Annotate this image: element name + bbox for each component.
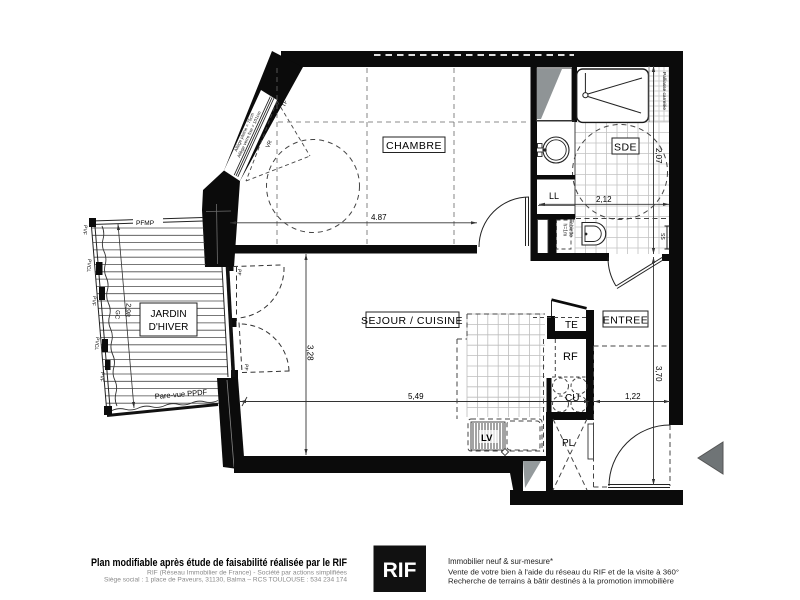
- svg-text:PF: PF: [242, 364, 249, 371]
- svg-text:PVF: PVF: [81, 225, 88, 235]
- svg-text:2,07: 2,07: [654, 148, 663, 164]
- svg-text:PVF: PVF: [98, 372, 105, 382]
- svg-text:2,12: 2,12: [596, 195, 612, 204]
- svg-text:GC: GC: [113, 310, 120, 320]
- svg-text:1,22: 1,22: [625, 392, 641, 401]
- svg-text:PVCL: PVCL: [85, 259, 92, 273]
- svg-text:PL: PL: [562, 438, 575, 449]
- svg-text:PF: PF: [235, 269, 242, 276]
- svg-text:ENTREE: ENTREE: [603, 315, 649, 327]
- svg-text:Immobilier neuf & sur-mesure*: Immobilier neuf & sur-mesure*: [448, 557, 553, 566]
- svg-text:PVF: PVF: [90, 296, 97, 306]
- svg-text:CHAMBRE: CHAMBRE: [386, 140, 442, 152]
- svg-text:2,98: 2,98: [123, 303, 131, 317]
- svg-text:D'HIVER: D'HIVER: [149, 322, 189, 333]
- svg-text:SS: SS: [659, 233, 665, 240]
- svg-text:LL: LL: [549, 191, 559, 201]
- svg-text:h=1m: h=1m: [562, 224, 568, 237]
- svg-text:5,49: 5,49: [408, 392, 424, 401]
- svg-text:RF: RF: [563, 351, 578, 363]
- svg-text:CU: CU: [565, 393, 579, 404]
- svg-text:RIF: RIF: [383, 559, 417, 582]
- svg-text:Plan modifiable après étude de: Plan modifiable après étude de faisabili…: [91, 557, 347, 569]
- svg-text:3,70: 3,70: [654, 366, 663, 382]
- svg-text:TE: TE: [565, 320, 578, 331]
- svg-text:Palliasse carrelée: Palliasse carrelée: [661, 72, 667, 110]
- svg-text:4.87: 4.87: [371, 213, 387, 222]
- svg-text:RIF (Réseau Immobilier de Fran: RIF (Réseau Immobilier de France) - Soci…: [147, 570, 348, 577]
- svg-text:Vente de votre bien à l'aide d: Vente de votre bien à l'aide du réseau d…: [448, 568, 679, 577]
- svg-text:SDE: SDE: [614, 142, 637, 154]
- svg-text:SEJOUR / CUISINE: SEJOUR / CUISINE: [361, 315, 463, 327]
- svg-text:PFMP: PFMP: [136, 220, 154, 227]
- svg-text:LV: LV: [481, 433, 493, 444]
- svg-text:PVCL: PVCL: [93, 337, 100, 351]
- svg-text:Recherche de terrains à bâtir: Recherche de terrains à bâtir destinés à…: [448, 577, 674, 586]
- svg-text:3,28: 3,28: [306, 345, 315, 361]
- svg-text:Siège social : 1 place de Pave: Siège social : 1 place de Paveurs, 31130…: [104, 577, 347, 584]
- svg-text:JARDIN: JARDIN: [150, 309, 186, 320]
